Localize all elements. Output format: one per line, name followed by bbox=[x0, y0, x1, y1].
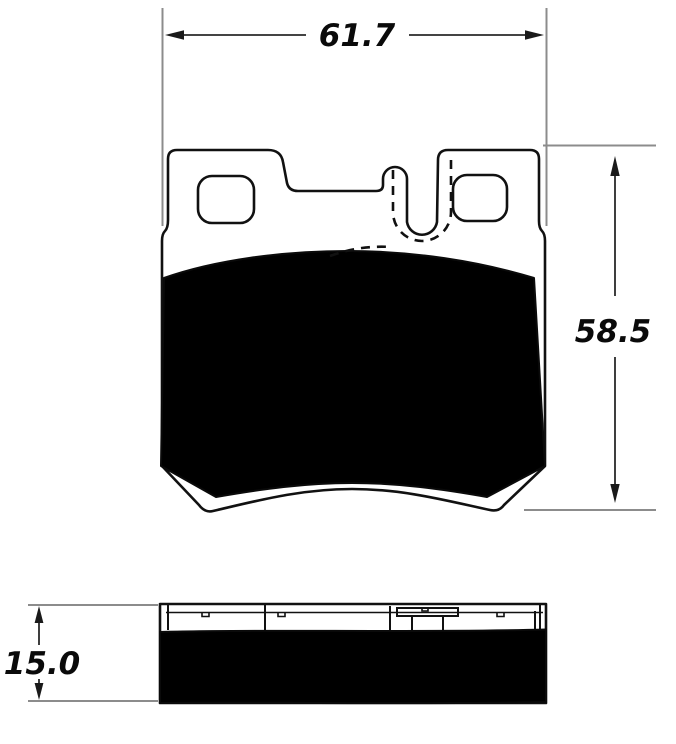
thickness-arrow-up bbox=[35, 606, 44, 623]
width-arrow-left bbox=[165, 30, 184, 39]
right-mounting-hole bbox=[453, 175, 507, 221]
drawing-canvas: 61.7 58.5 15.0 bbox=[0, 0, 676, 744]
thickness-dimension-label: 15.0 bbox=[4, 646, 81, 682]
front-view bbox=[161, 150, 545, 511]
thickness-dimension: 15.0 bbox=[4, 605, 158, 701]
height-arrow-down bbox=[610, 484, 619, 503]
width-arrow-right bbox=[525, 30, 544, 39]
left-mounting-hole bbox=[198, 176, 254, 223]
height-dimension-label: 58.5 bbox=[575, 314, 652, 350]
thickness-arrow-down bbox=[35, 683, 44, 700]
width-dimension-label: 61.7 bbox=[319, 18, 396, 54]
friction-material bbox=[161, 251, 545, 497]
side-view bbox=[160, 604, 546, 703]
height-arrow-up bbox=[610, 156, 619, 176]
brake-pad-technical-drawing: 61.7 58.5 15.0 bbox=[0, 0, 676, 744]
side-friction-material bbox=[160, 630, 546, 704]
